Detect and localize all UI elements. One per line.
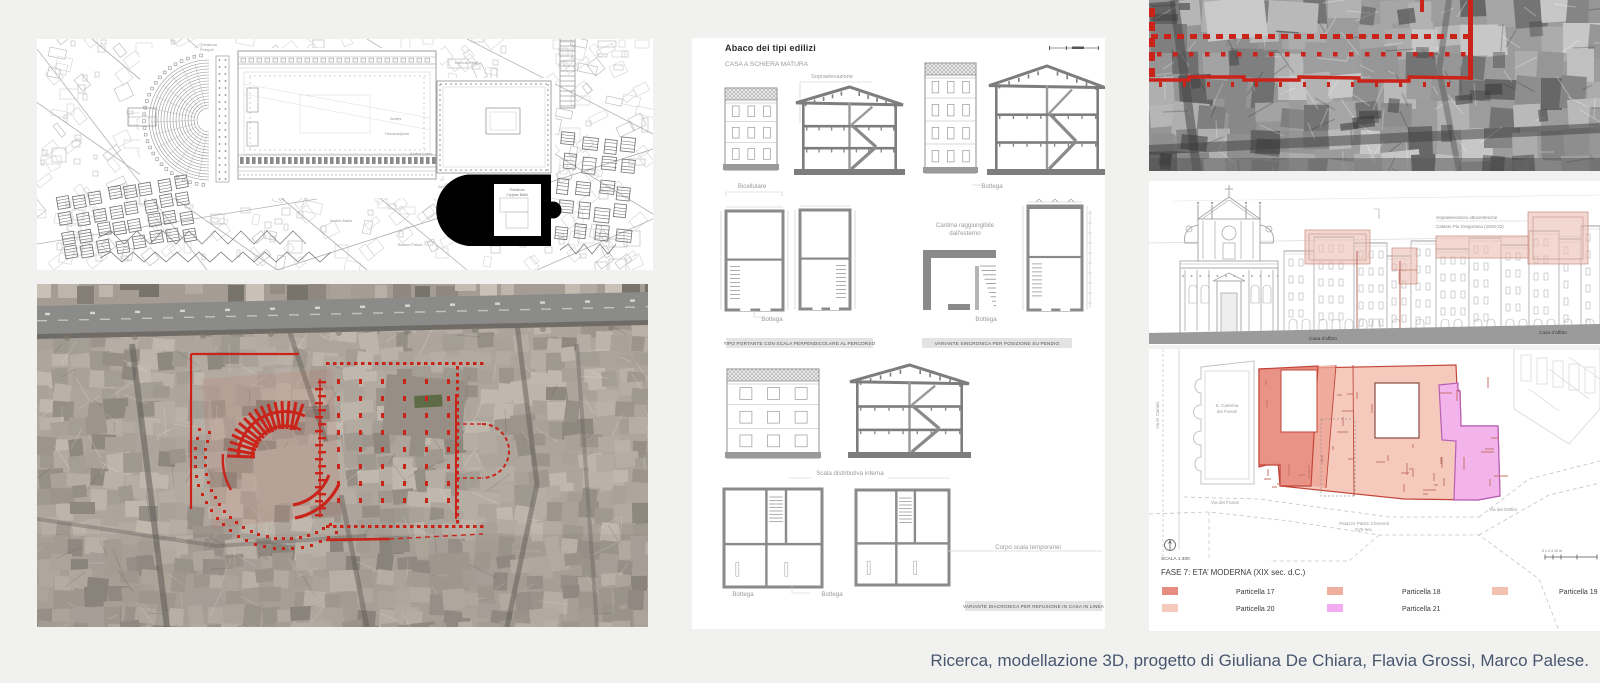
svg-text:VARIANTE DIACRONICA PER REFUSI: VARIANTE DIACRONICA PER REFUSIONE IN CAS… — [963, 604, 1105, 609]
svg-text:XVII sec.: XVII sec. — [1355, 527, 1373, 532]
svg-text:CASA A SCHIERA MATURA: CASA A SCHIERA MATURA — [725, 61, 809, 68]
svg-text:Particella 17: Particella 17 — [1236, 589, 1275, 596]
svg-text:Bicellulare: Bicellulare — [738, 183, 767, 190]
svg-text:SCALA 1:400: SCALA 1:400 — [1161, 556, 1190, 562]
svg-text:Aedes Maris: Aedes Maris — [330, 218, 352, 223]
svg-text:TIPO PORTANTE CON SCALA PERPEN: TIPO PORTANTE CON SCALA PERPENDICOLARE A… — [724, 341, 876, 346]
svg-text:FASE 7: ETA’ MODERNA (XIX sec.: FASE 7: ETA’ MODERNA (XIX sec. d.C.) — [1161, 568, 1306, 577]
svg-text:Particella 20: Particella 20 — [1236, 606, 1275, 613]
svg-text:Aed.: Aed. — [438, 184, 446, 189]
svg-text:Theatrum: Theatrum — [509, 188, 524, 192]
svg-text:Corpo scala temporanei: Corpo scala temporanei — [995, 544, 1061, 551]
svg-text:dall'esterno: dall'esterno — [949, 230, 981, 237]
svg-text:Bottega: Bottega — [761, 316, 783, 323]
svg-text:Domus Relef: Domus Relef — [455, 60, 479, 65]
svg-text:Bottega: Bottega — [981, 183, 1003, 190]
svg-text:Balbus Palast: Balbus Palast — [398, 242, 423, 247]
svg-text:Hecatostylum: Hecatostylum — [385, 131, 410, 136]
svg-text:Particella 19: Particella 19 — [1559, 589, 1598, 596]
svg-text:Via dei Delfini: Via dei Delfini — [1489, 507, 1517, 512]
svg-text:Particella 21: Particella 21 — [1402, 606, 1441, 613]
svg-text:Cryptae Balbi: Cryptae Balbi — [506, 193, 528, 197]
svg-text:Cantina raggiungibile: Cantina raggiungibile — [936, 222, 995, 229]
svg-text:Sopraelevazioni ottocentesche: Sopraelevazioni ottocentesche — [1436, 215, 1498, 220]
svg-text:Bottega: Bottega — [732, 591, 754, 598]
svg-text:S. Caterina: S. Caterina — [1216, 403, 1239, 408]
svg-text:Abaco dei tipi edilizi: Abaco dei tipi edilizi — [725, 43, 816, 53]
svg-text:Bottega: Bottega — [975, 316, 997, 323]
svg-text:Sopraelevazione: Sopraelevazione — [811, 74, 853, 80]
svg-text:Bottega: Bottega — [821, 591, 843, 598]
svg-text:dei Funari: dei Funari — [1217, 409, 1237, 414]
svg-text:0 1 2 4 10: 0 1 2 4 10 m — [1542, 549, 1562, 553]
svg-text:Palazzo Patrizi Clementi: Palazzo Patrizi Clementi — [1339, 521, 1389, 526]
svg-text:VARIANTE SINCRONICA PER POSIZI: VARIANTE SINCRONICA PER POSIZIONE SU PEN… — [935, 341, 1060, 346]
svg-text:Scala distributiva interna: Scala distributiva interna — [816, 470, 884, 477]
svg-text:Particella 18: Particella 18 — [1402, 589, 1441, 596]
svg-text:Pompei: Pompei — [200, 47, 214, 52]
svg-text:Casa d'affitto: Casa d'affitto — [1539, 330, 1567, 336]
svg-text:Via dei Funari: Via dei Funari — [1211, 500, 1239, 505]
svg-text:Aedes: Aedes — [390, 116, 401, 121]
svg-text:Via M. Caetani: Via M. Caetani — [1155, 402, 1160, 429]
svg-text:Casa d'affitto: Casa d'affitto — [1309, 336, 1337, 342]
svg-text:Catasto Pio Gregoriano (1819-2: Catasto Pio Gregoriano (1819-22) — [1436, 224, 1504, 229]
svg-text:Aedes Lares: Aedes Lares — [410, 151, 432, 156]
